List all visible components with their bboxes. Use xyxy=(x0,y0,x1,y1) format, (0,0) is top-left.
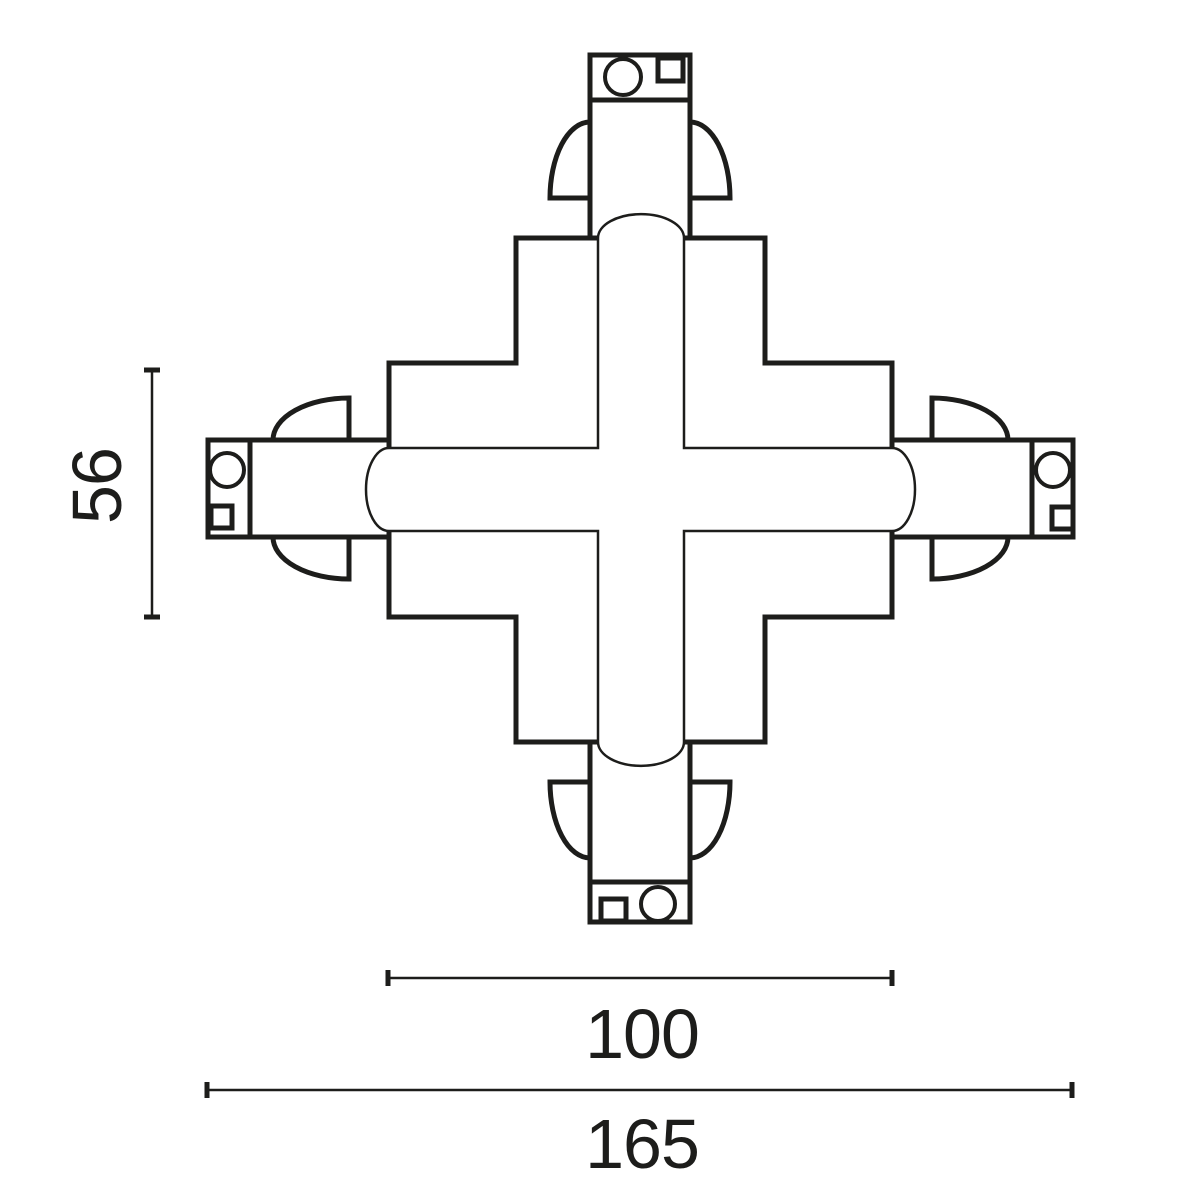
inner-track-slot-outline xyxy=(366,214,915,766)
dimension-depth-label: 56 xyxy=(58,448,136,524)
right-connector-top-wing-arc xyxy=(932,398,1008,440)
bottom-connector-outline xyxy=(590,742,690,922)
left-connector xyxy=(208,398,389,579)
bottom-connector-left-wing-arc xyxy=(550,782,590,858)
dimension-body-width-label: 100 xyxy=(585,995,699,1073)
right-connector-square-contact xyxy=(1052,507,1073,529)
right-connector xyxy=(892,398,1073,579)
left-connector-bottom-wing-arc xyxy=(273,537,349,579)
drawing-canvas: 56 100 165 xyxy=(0,0,1198,1200)
dimension-body-width-100: 100 xyxy=(388,970,892,1073)
connector-body xyxy=(366,214,915,766)
top-connector xyxy=(550,55,730,238)
right-connector-circle-contact xyxy=(1036,453,1070,487)
left-connector-top-wing-arc xyxy=(273,398,349,440)
cross-connector-technical-drawing: 56 100 165 xyxy=(0,0,1198,1200)
outer-body-outline xyxy=(389,238,892,742)
left-connector-square-contact xyxy=(211,506,232,528)
bottom-connector-right-wing-arc xyxy=(690,782,730,858)
dimension-depth-56: 56 xyxy=(58,370,160,617)
right-connector-bottom-wing-arc xyxy=(932,537,1008,579)
bottom-connector-square-contact xyxy=(601,899,626,921)
bottom-connector xyxy=(550,742,730,922)
dimension-overall-width-165: 165 xyxy=(207,1082,1072,1183)
bottom-connector-circle-contact xyxy=(641,887,675,921)
left-connector-circle-contact xyxy=(210,453,244,487)
dimension-overall-width-label: 165 xyxy=(585,1105,699,1183)
top-connector-circle-contact xyxy=(605,59,641,95)
top-connector-left-wing-arc xyxy=(550,122,590,198)
top-connector-square-contact xyxy=(658,58,683,81)
top-connector-right-wing-arc xyxy=(690,122,730,198)
